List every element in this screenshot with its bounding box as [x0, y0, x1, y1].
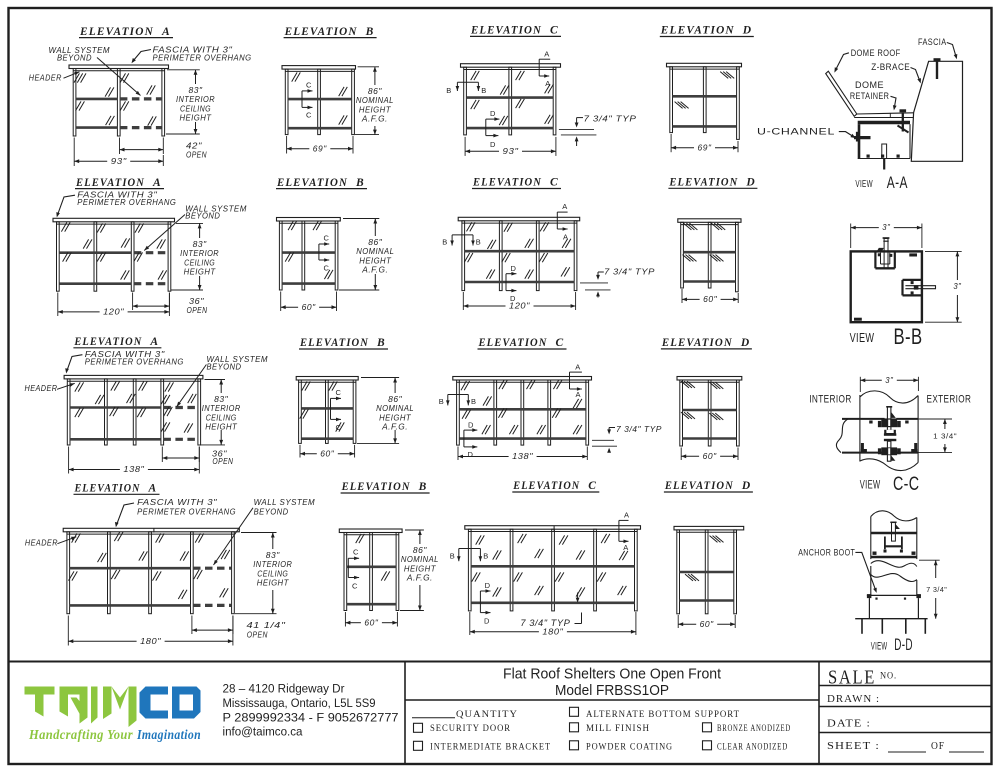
svg-text:83": 83" — [189, 86, 204, 95]
svg-text:PERIMETER OVERHANG: PERIMETER OVERHANG — [137, 508, 236, 517]
svg-text:C: C — [306, 111, 312, 120]
svg-text:ELEVATION: ELEVATION — [470, 25, 542, 37]
svg-text:A.F.G.: A.F.G. — [361, 115, 388, 124]
svg-text:DATE :: DATE : — [827, 718, 871, 730]
svg-text:HEIGHT: HEIGHT — [359, 105, 391, 114]
svg-text:D-D: D-D — [894, 635, 913, 654]
svg-text:A.F.G.: A.F.G. — [361, 266, 388, 275]
svg-text:C: C — [550, 177, 559, 189]
svg-text:OPEN: OPEN — [212, 457, 233, 466]
svg-text:A: A — [149, 336, 159, 348]
svg-text:QUANTITY: QUANTITY — [456, 710, 518, 720]
svg-text:138": 138" — [123, 465, 145, 474]
svg-text:CEILING: CEILING — [180, 104, 211, 113]
svg-text:ALTERNATE BOTTOM SUPPORT: ALTERNATE BOTTOM SUPPORT — [586, 710, 740, 720]
svg-text:C: C — [336, 388, 342, 397]
svg-text:D: D — [511, 264, 517, 273]
svg-text:NO.: NO. — [880, 672, 897, 682]
svg-text:INTERIOR: INTERIOR — [253, 560, 292, 569]
svg-text:FASCIA: FASCIA — [918, 37, 947, 48]
svg-text:28 – 4120 Ridgeway Dr: 28 – 4120 Ridgeway Dr — [223, 681, 345, 695]
svg-text:180": 180" — [542, 627, 564, 636]
svg-text:VIEW: VIEW — [871, 641, 888, 653]
svg-text:B: B — [442, 238, 448, 247]
svg-text:PERIMETER OVERHANG: PERIMETER OVERHANG — [153, 53, 252, 62]
svg-text:ELEVATION: ELEVATION — [299, 337, 369, 349]
svg-text:VIEW: VIEW — [860, 478, 881, 492]
svg-text:60": 60" — [302, 303, 317, 312]
svg-text:ELEVATION: ELEVATION — [74, 483, 141, 495]
svg-text:138": 138" — [512, 452, 534, 461]
svg-text:7 3/4" TYP: 7 3/4" TYP — [604, 268, 655, 277]
svg-text:D: D — [490, 140, 496, 149]
svg-text:HEIGHT: HEIGHT — [205, 423, 237, 432]
svg-text:PERIMETER OVERHANG: PERIMETER OVERHANG — [85, 358, 184, 367]
svg-text:Flat Roof Shelters One Open Fr: Flat Roof Shelters One Open Front — [503, 665, 722, 682]
svg-text:HEIGHT: HEIGHT — [180, 114, 212, 123]
svg-text:OF: OF — [931, 741, 945, 752]
svg-text:7 3/4" TYP: 7 3/4" TYP — [584, 114, 637, 123]
svg-text:EXTERIOR: EXTERIOR — [927, 394, 972, 406]
svg-text:A: A — [161, 26, 171, 38]
svg-text:MILL FINISH: MILL FINISH — [586, 724, 650, 734]
svg-text:ELEVATION: ELEVATION — [668, 177, 738, 189]
svg-text:U-CHANNEL: U-CHANNEL — [757, 126, 835, 137]
svg-text:86": 86" — [413, 546, 428, 555]
svg-text:B-B: B-B — [894, 324, 923, 349]
svg-text:D: D — [485, 581, 491, 590]
svg-text:B: B — [365, 26, 375, 38]
svg-text:HEIGHT: HEIGHT — [379, 413, 411, 422]
svg-text:OPEN: OPEN — [247, 631, 268, 640]
svg-text:B: B — [481, 86, 487, 95]
svg-text:A.F.G.: A.F.G. — [406, 574, 433, 583]
svg-text:D: D — [740, 337, 751, 349]
svg-text:INTERIOR: INTERIOR — [180, 249, 219, 258]
svg-text:ELEVATION: ELEVATION — [341, 481, 411, 493]
svg-text:P 2899992334 - F 9052672777: P 2899992334 - F 9052672777 — [223, 710, 399, 724]
svg-text:C-C: C-C — [893, 474, 920, 495]
svg-text:A.F.G.: A.F.G. — [381, 423, 408, 432]
svg-text:NOMINAL: NOMINAL — [356, 96, 394, 105]
svg-text:ELEVATION: ELEVATION — [660, 25, 735, 37]
svg-text:180": 180" — [140, 637, 162, 646]
svg-text:60": 60" — [703, 452, 718, 461]
svg-text:ELEVATION: ELEVATION — [661, 337, 733, 349]
svg-text:C: C — [352, 582, 358, 591]
svg-text:HEADER: HEADER — [25, 384, 58, 393]
svg-text:C: C — [556, 337, 565, 349]
svg-text:NOMINAL: NOMINAL — [376, 404, 414, 413]
svg-text:WALL SYSTEM: WALL SYSTEM — [254, 498, 316, 507]
svg-text:A-A: A-A — [887, 174, 908, 192]
svg-text:3": 3" — [953, 282, 962, 291]
svg-text:1 3/4": 1 3/4" — [933, 432, 957, 441]
svg-text:CEILING: CEILING — [206, 413, 237, 422]
svg-text:60": 60" — [364, 618, 379, 627]
svg-text:C: C — [588, 480, 597, 492]
svg-text:D: D — [741, 480, 752, 492]
svg-text:Mississauga, Ontario, L5L 5S9: Mississauga, Ontario, L5L 5S9 — [223, 696, 376, 710]
svg-text:HEADER: HEADER — [29, 73, 62, 82]
svg-text:A: A — [544, 50, 550, 59]
svg-text:3": 3" — [885, 376, 894, 385]
svg-text:A: A — [563, 233, 569, 242]
svg-text:C: C — [336, 423, 342, 432]
svg-text:HEIGHT: HEIGHT — [359, 256, 391, 265]
svg-text:BEYOND: BEYOND — [185, 212, 220, 221]
svg-text:HEIGHT: HEIGHT — [184, 268, 216, 277]
svg-text:93": 93" — [111, 157, 128, 166]
svg-text:C: C — [324, 233, 330, 242]
svg-text:120": 120" — [509, 302, 531, 311]
svg-text:Model FRBSS1OP: Model FRBSS1OP — [555, 682, 669, 699]
svg-text:C: C — [306, 80, 312, 89]
svg-text:D: D — [742, 25, 753, 37]
svg-text:ELEVATION: ELEVATION — [79, 26, 154, 38]
svg-text:A: A — [152, 177, 162, 189]
svg-text:NOMINAL: NOMINAL — [401, 555, 439, 564]
svg-text:B: B — [355, 177, 365, 189]
svg-text:DOME: DOME — [855, 80, 884, 91]
svg-text:OPEN: OPEN — [187, 306, 208, 315]
svg-text:7 3/4" TYP: 7 3/4" TYP — [616, 425, 662, 434]
svg-text:PERIMETER OVERHANG: PERIMETER OVERHANG — [77, 198, 176, 207]
svg-text:INTERIOR: INTERIOR — [176, 95, 215, 104]
svg-text:42": 42" — [186, 141, 203, 150]
svg-text:86": 86" — [368, 87, 383, 96]
svg-text:B: B — [450, 552, 456, 561]
svg-text:INTERIOR: INTERIOR — [809, 394, 852, 406]
svg-text:86": 86" — [388, 395, 403, 404]
svg-text:HEIGHT: HEIGHT — [404, 564, 436, 573]
svg-text:info@taimco.ca: info@taimco.ca — [223, 725, 303, 739]
svg-text:CEILING: CEILING — [257, 569, 288, 578]
svg-text:HEIGHT: HEIGHT — [257, 579, 289, 588]
svg-text:83": 83" — [266, 551, 281, 560]
svg-text:D: D — [490, 109, 496, 118]
svg-text:BEYOND: BEYOND — [57, 54, 92, 63]
svg-text:INTERIOR: INTERIOR — [202, 404, 241, 413]
svg-text:ELEVATION: ELEVATION — [75, 177, 145, 189]
svg-text:SHEET :: SHEET : — [827, 740, 880, 752]
svg-text:60": 60" — [703, 295, 718, 304]
svg-text:RETAINER: RETAINER — [850, 91, 890, 102]
svg-text:BRONZE ANODIZED: BRONZE ANODIZED — [717, 724, 791, 734]
svg-text:A: A — [623, 543, 629, 552]
svg-text:ANCHOR BOOT: ANCHOR BOOT — [798, 548, 855, 558]
svg-text:NOMINAL: NOMINAL — [356, 247, 394, 256]
svg-text:C: C — [353, 548, 359, 557]
svg-text:Z-BRACE: Z-BRACE — [871, 62, 910, 73]
svg-text:A: A — [575, 362, 581, 371]
svg-text:B: B — [418, 481, 428, 493]
svg-text:120": 120" — [103, 308, 125, 317]
svg-text:ELEVATION: ELEVATION — [664, 480, 734, 492]
svg-text:86": 86" — [368, 238, 383, 247]
svg-text:ELEVATION: ELEVATION — [472, 177, 542, 189]
svg-text:83": 83" — [193, 240, 208, 249]
svg-text:INTERMEDIATE BRACKET: INTERMEDIATE BRACKET — [430, 743, 551, 753]
svg-text:FASCIA WITH 3": FASCIA WITH 3" — [137, 498, 218, 507]
svg-text:B: B — [476, 238, 482, 247]
svg-text:D: D — [468, 420, 474, 429]
svg-text:Handcrafting Your: Handcrafting Your — [28, 727, 133, 742]
svg-text:D: D — [484, 617, 490, 626]
svg-text:ELEVATION: ELEVATION — [73, 336, 142, 348]
svg-text:B: B — [376, 337, 386, 349]
svg-text:B: B — [446, 86, 452, 95]
svg-text:ELEVATION: ELEVATION — [284, 26, 358, 38]
svg-text:69": 69" — [698, 143, 713, 152]
svg-text:DRAWN :: DRAWN : — [827, 693, 880, 705]
svg-text:CEILING: CEILING — [184, 258, 215, 267]
svg-text:A: A — [562, 202, 568, 211]
svg-text:SECURITY DOOR: SECURITY DOOR — [430, 724, 511, 734]
svg-text:60": 60" — [700, 620, 715, 629]
svg-text:C: C — [324, 263, 330, 272]
svg-text:A: A — [148, 483, 158, 495]
svg-text:DOME ROOF: DOME ROOF — [851, 48, 901, 59]
svg-text:93": 93" — [503, 147, 520, 156]
svg-text:B: B — [439, 397, 445, 406]
svg-text:A: A — [545, 79, 551, 88]
svg-text:POWDER COATING: POWDER COATING — [586, 743, 673, 753]
svg-text:83": 83" — [214, 395, 229, 404]
svg-text:SALE: SALE — [828, 667, 876, 689]
svg-text:OPEN: OPEN — [186, 150, 207, 159]
svg-text:69": 69" — [313, 144, 328, 153]
svg-text:41 1/4": 41 1/4" — [247, 621, 287, 630]
svg-text:VIEW: VIEW — [850, 331, 875, 345]
svg-text:Imagination: Imagination — [136, 727, 201, 742]
svg-text:A: A — [624, 511, 630, 520]
svg-text:B: B — [471, 397, 477, 406]
svg-text:ELEVATION: ELEVATION — [276, 177, 348, 189]
svg-text:D: D — [745, 177, 756, 189]
svg-text:ELEVATION: ELEVATION — [512, 480, 580, 492]
svg-text:BEYOND: BEYOND — [254, 508, 289, 517]
svg-text:VIEW: VIEW — [855, 179, 873, 190]
svg-text:C: C — [550, 25, 559, 37]
svg-text:BEYOND: BEYOND — [207, 362, 242, 371]
svg-text:3": 3" — [882, 223, 891, 232]
svg-text:7 3/4": 7 3/4" — [926, 585, 947, 594]
svg-text:HEADER: HEADER — [25, 539, 58, 548]
svg-text:ELEVATION: ELEVATION — [478, 337, 548, 349]
svg-text:A: A — [576, 390, 582, 399]
svg-text:D: D — [468, 450, 474, 459]
svg-text:CLEAR ANODIZED: CLEAR ANODIZED — [717, 743, 788, 753]
svg-text:60": 60" — [320, 449, 335, 458]
svg-text:B: B — [483, 552, 489, 561]
